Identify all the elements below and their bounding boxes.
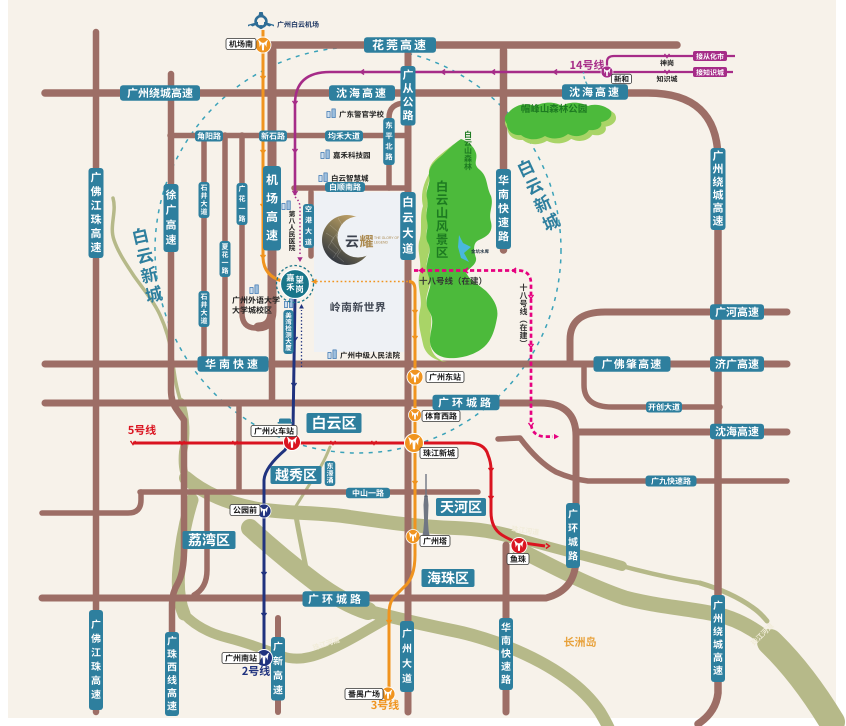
svg-text:THE GLORY OF: THE GLORY OF	[374, 236, 399, 240]
svg-text:LEGEND: LEGEND	[374, 241, 388, 245]
